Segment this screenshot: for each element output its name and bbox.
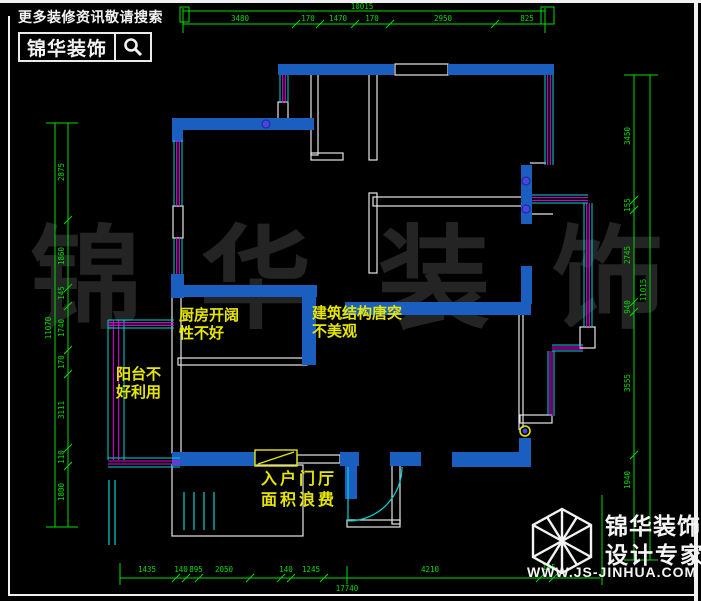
annotation-line: 好利用 bbox=[116, 384, 161, 402]
svg-text:825: 825 bbox=[520, 14, 534, 23]
annotation-line: 不美观 bbox=[312, 323, 402, 341]
cad-floorplan-screenshot: 锦 华 装 饰 10015348017014701702950825110702… bbox=[0, 0, 701, 601]
svg-text:145: 145 bbox=[57, 286, 66, 300]
annotation-kitchen: 厨房开阔 性不好 bbox=[179, 307, 239, 343]
footer-website: WWW.JS-JINHUA.COM bbox=[527, 564, 697, 580]
svg-text:1740: 1740 bbox=[57, 318, 66, 337]
svg-text:170: 170 bbox=[57, 355, 66, 369]
svg-text:3480: 3480 bbox=[231, 14, 250, 23]
svg-text:1435: 1435 bbox=[138, 565, 156, 574]
svg-text:170: 170 bbox=[365, 14, 379, 23]
annotation-structure: 建筑结构唐突 不美观 bbox=[312, 305, 402, 341]
svg-text:11070: 11070 bbox=[44, 316, 53, 339]
annotation-entry: 入户门厅 面积浪费 bbox=[261, 469, 337, 511]
frame-border-left bbox=[8, 16, 10, 596]
brand-search-box: 锦华装饰 bbox=[18, 32, 152, 62]
annotation-line: 性不好 bbox=[179, 325, 239, 343]
svg-text:2875: 2875 bbox=[57, 163, 66, 181]
svg-text:140: 140 bbox=[279, 565, 293, 574]
svg-text:10015: 10015 bbox=[351, 2, 374, 11]
svg-text:2745: 2745 bbox=[623, 246, 632, 264]
annotation-line: 面积浪费 bbox=[261, 490, 337, 511]
svg-text:1245: 1245 bbox=[302, 565, 320, 574]
brand-name: 锦华装饰 bbox=[20, 34, 114, 61]
svg-text:3450: 3450 bbox=[623, 126, 632, 145]
frame-border-top bbox=[0, 0, 701, 3]
svg-text:3555: 3555 bbox=[623, 374, 632, 392]
svg-text:3111: 3111 bbox=[57, 401, 66, 419]
annotation-line: 建筑结构唐突 bbox=[312, 305, 402, 323]
svg-text:1940: 1940 bbox=[623, 470, 632, 489]
svg-text:940: 940 bbox=[623, 300, 632, 314]
svg-text:140: 140 bbox=[174, 565, 188, 574]
svg-text:2950: 2950 bbox=[434, 14, 453, 23]
svg-text:2050: 2050 bbox=[215, 565, 234, 574]
svg-text:155: 155 bbox=[623, 198, 632, 212]
svg-text:170: 170 bbox=[301, 14, 315, 23]
svg-text:1470: 1470 bbox=[329, 14, 348, 23]
svg-text:895: 895 bbox=[189, 565, 203, 574]
svg-text:110: 110 bbox=[57, 450, 66, 464]
frame-border-bottom bbox=[10, 594, 694, 596]
annotation-balcony: 阳台不 好利用 bbox=[116, 366, 161, 402]
header-tagline: 更多装修资讯敬请搜索 bbox=[18, 7, 163, 27]
annotation-line: 厨房开阔 bbox=[179, 307, 239, 325]
svg-text:1800: 1800 bbox=[57, 482, 66, 501]
annotation-line: 阳台不 bbox=[116, 366, 161, 384]
svg-text:4210: 4210 bbox=[421, 565, 440, 574]
svg-text:1860: 1860 bbox=[57, 246, 66, 265]
annotation-line: 入户门厅 bbox=[261, 469, 337, 490]
svg-text:11015: 11015 bbox=[639, 279, 648, 302]
search-icon bbox=[114, 34, 150, 60]
svg-text:17740: 17740 bbox=[336, 584, 359, 593]
header: 更多装修资讯敬请搜索 锦华装饰 bbox=[18, 7, 163, 62]
